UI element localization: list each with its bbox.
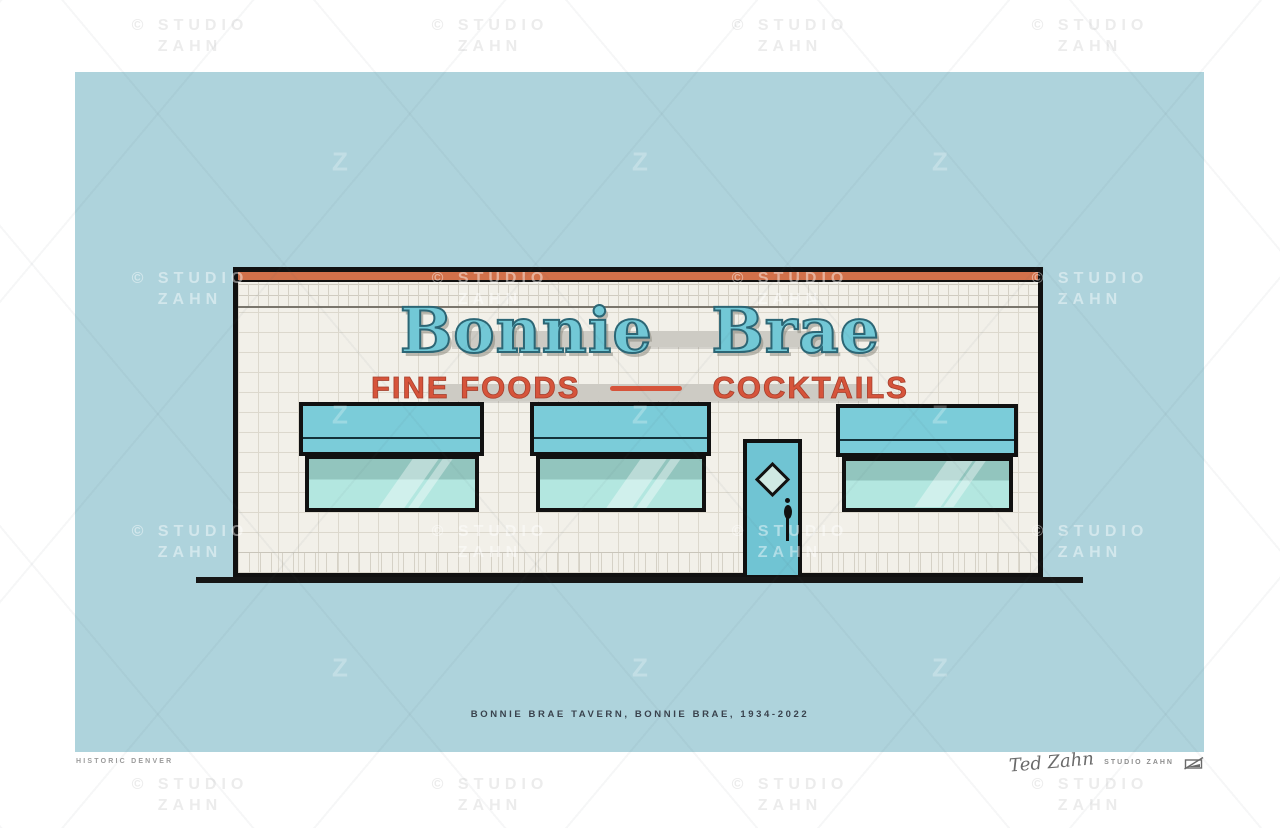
artist-credit-block: Ted Zahn STUDIO ZAHN — [1009, 752, 1204, 773]
window-left — [305, 455, 479, 512]
roof-stripe — [238, 272, 1038, 282]
awning-valance — [840, 439, 1014, 441]
awning-valance — [534, 437, 707, 439]
tagline-sign: FINE FOODS COCKTAILS — [0, 368, 1280, 408]
door-diamond-window — [754, 462, 789, 497]
ground-line — [196, 577, 1083, 583]
studio-name-text: STUDIO ZAHN — [1104, 759, 1174, 766]
door-peephole — [785, 498, 790, 503]
lower-tile-band — [238, 552, 1038, 573]
studio-zahn-logo-icon — [1184, 756, 1204, 770]
door-handle-stem — [786, 513, 789, 541]
building-illustration: Bonnie Brae FINE FOODS COCKTAILS — [0, 0, 1280, 828]
artist-signature: Ted Zahn — [1008, 748, 1094, 776]
window-middle — [536, 455, 706, 512]
awning-middle — [530, 402, 711, 456]
awning-left — [299, 402, 484, 456]
awning-valance — [303, 437, 480, 439]
tagline-right-text: COCKTAILS — [712, 370, 909, 406]
window-right — [842, 457, 1013, 512]
tagline-left-text: FINE FOODS — [371, 370, 580, 406]
awning-right — [836, 404, 1018, 457]
neon-sign-name: Bonnie Brae — [0, 294, 1280, 367]
publisher-credit: HISTORIC DENVER — [76, 758, 173, 765]
entrance-door — [743, 439, 802, 579]
poster-background: Bonnie Brae FINE FOODS COCKTAILS — [75, 72, 1204, 752]
print-caption: BONNIE BRAE TAVERN, BONNIE BRAE, 1934-20… — [0, 709, 1280, 720]
art-print-page: © STUDIOZAHN© STUDIOZAHN© STUDIOZAHN© ST… — [0, 0, 1280, 828]
tagline-dash — [610, 386, 682, 391]
